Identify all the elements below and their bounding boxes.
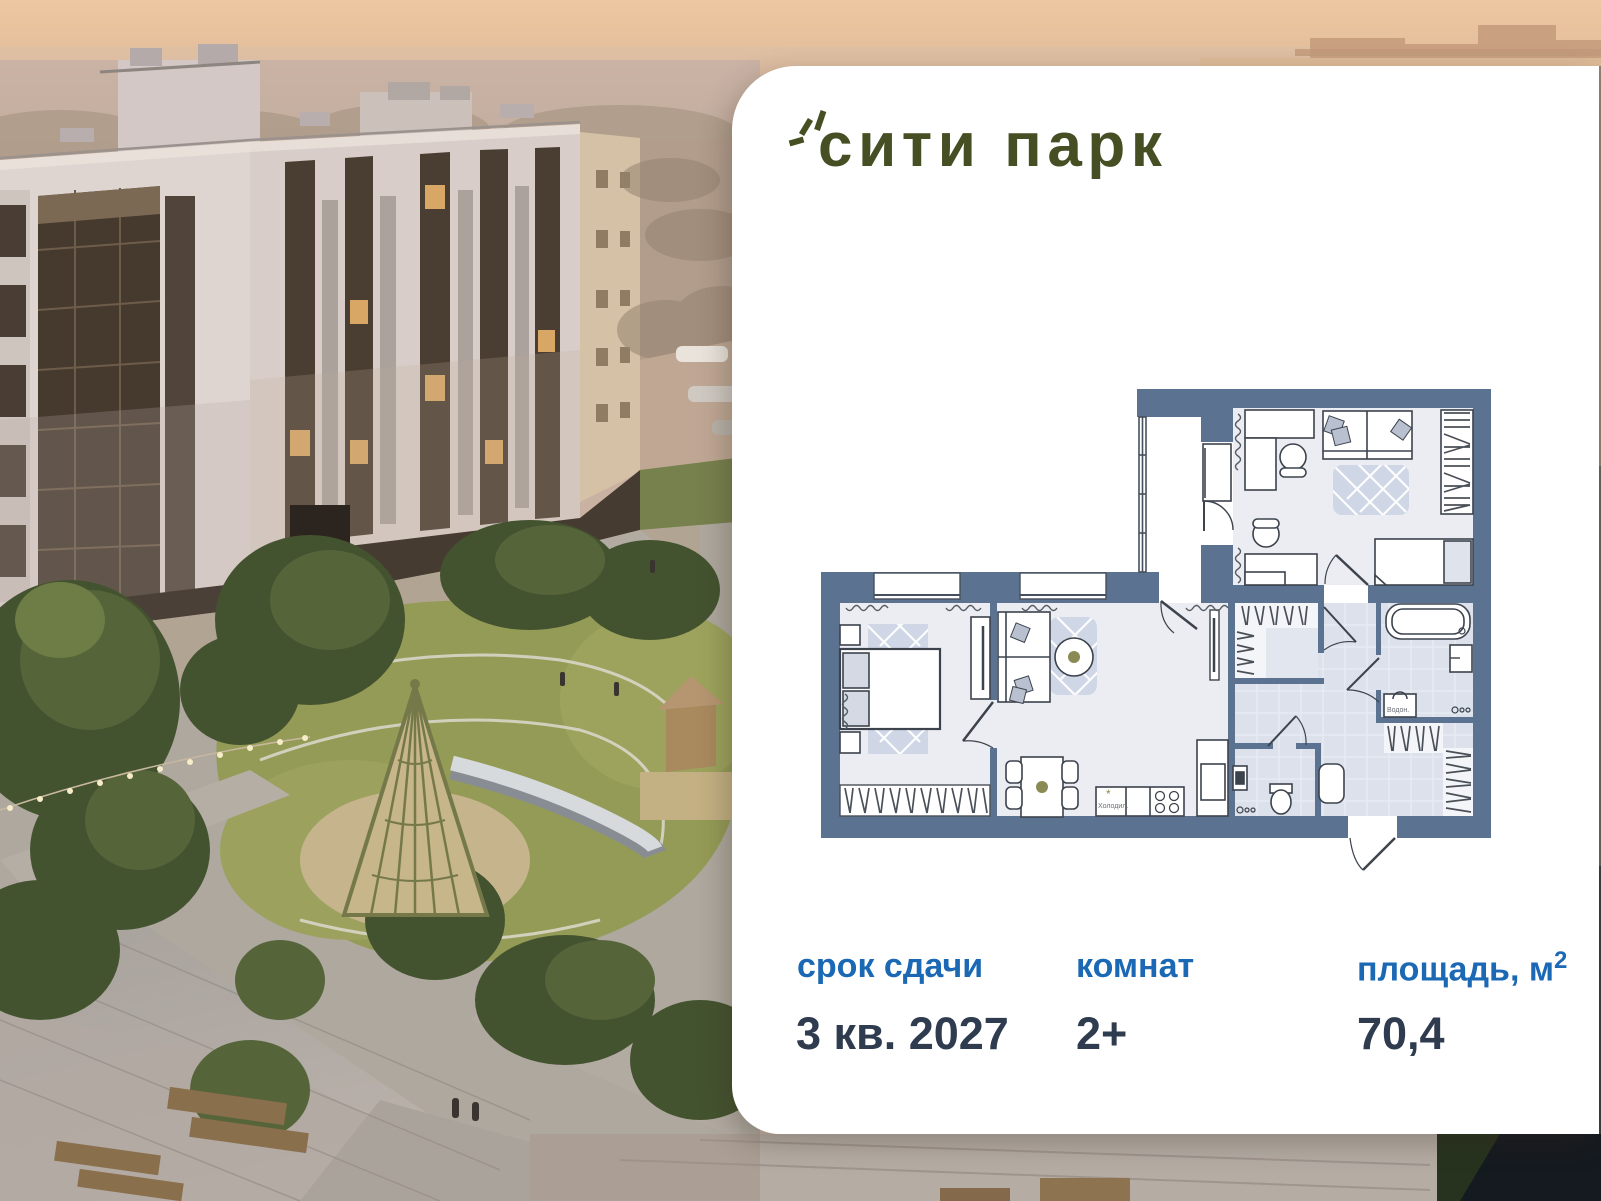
svg-text:Холодил.: Холодил. [1098,803,1128,810]
svg-text:*: * [1106,787,1111,801]
svg-text:Водон.: Водон. [1387,707,1409,714]
svg-text:сити парк: сити парк [818,111,1168,180]
